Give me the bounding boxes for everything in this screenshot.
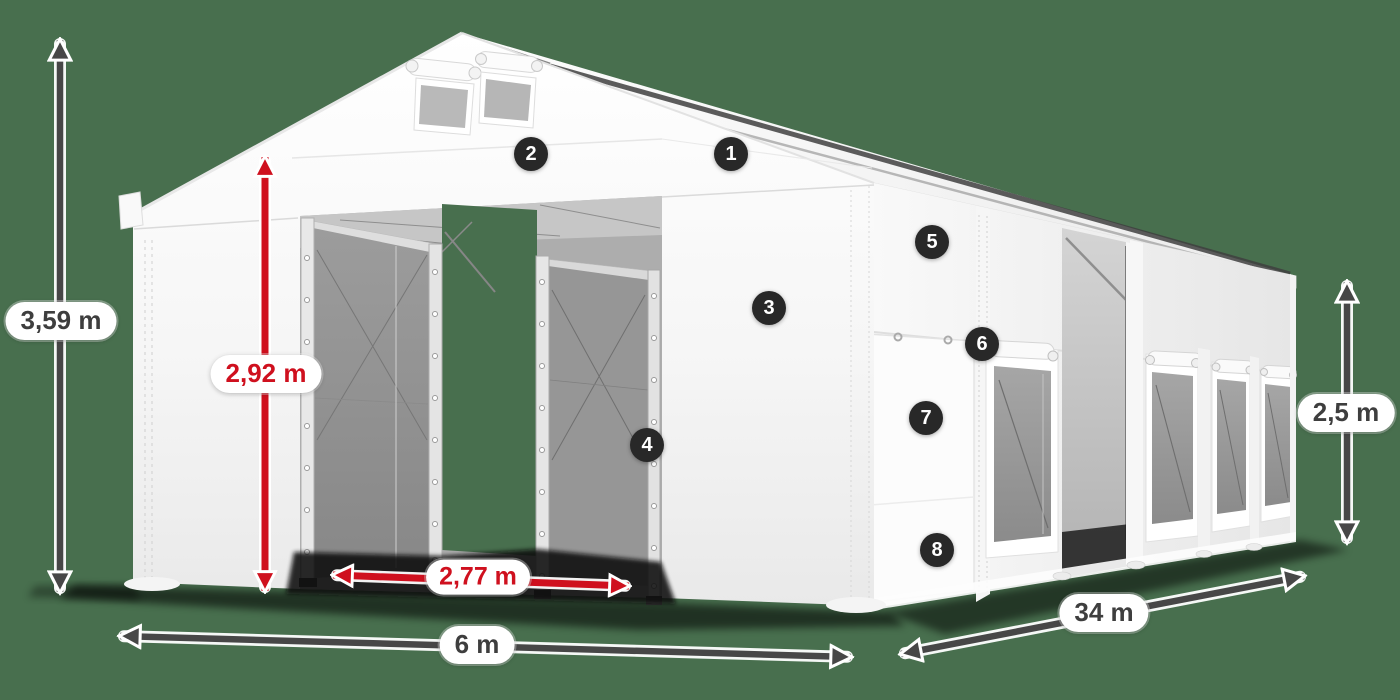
wall-strap: [1290, 274, 1296, 542]
dimension-label-entrance-height: 2,92 m: [211, 355, 322, 393]
dimension-label-side-length: 34 m: [1059, 594, 1148, 632]
gate-pole: [301, 218, 314, 586]
side-window: [1212, 359, 1254, 532]
hotspot-2[interactable]: 2: [514, 137, 548, 171]
wall-skirt: [124, 577, 180, 591]
hotspot-1[interactable]: 1: [714, 137, 748, 171]
side-window: [986, 340, 1058, 558]
gable-vent-right: [476, 51, 543, 128]
product-diagram-stage: 3,59 m 2,92 m 2,77 m 6 m 34 m 2,5 m 1 2 …: [0, 0, 1400, 700]
dimension-label-side-wall-height: 2,5 m: [1298, 394, 1395, 432]
wall-skirt: [826, 597, 886, 613]
wall-strap: [1198, 348, 1210, 554]
dimension-label-total-height: 3,59 m: [6, 302, 117, 340]
gate-pole: [536, 256, 549, 596]
entrance-opening: [286, 196, 676, 605]
side-door-panel: [868, 334, 974, 604]
side-window: [1146, 351, 1203, 542]
entrance-gate-left: [299, 218, 444, 587]
side-open-doorway: [1062, 228, 1140, 578]
hotspot-6[interactable]: 6: [965, 327, 999, 361]
entrance-open-gap: [442, 204, 537, 556]
tent-illustration: [0, 0, 1400, 700]
hotspot-4[interactable]: 4: [630, 428, 664, 462]
hotspot-7[interactable]: 7: [909, 401, 943, 435]
dimension-label-entrance-width: 2,77 m: [426, 560, 530, 595]
wall-strap: [1130, 240, 1143, 566]
wall-strap: [1250, 356, 1259, 547]
dimension-label-front-width: 6 m: [440, 626, 515, 664]
hotspot-5[interactable]: 5: [915, 225, 949, 259]
hotspot-3[interactable]: 3: [752, 291, 786, 325]
window-roller: [990, 340, 1055, 359]
gable-vent-left: [406, 57, 481, 135]
eave-corner-cap: [119, 192, 143, 229]
hotspot-8[interactable]: 8: [920, 533, 954, 567]
